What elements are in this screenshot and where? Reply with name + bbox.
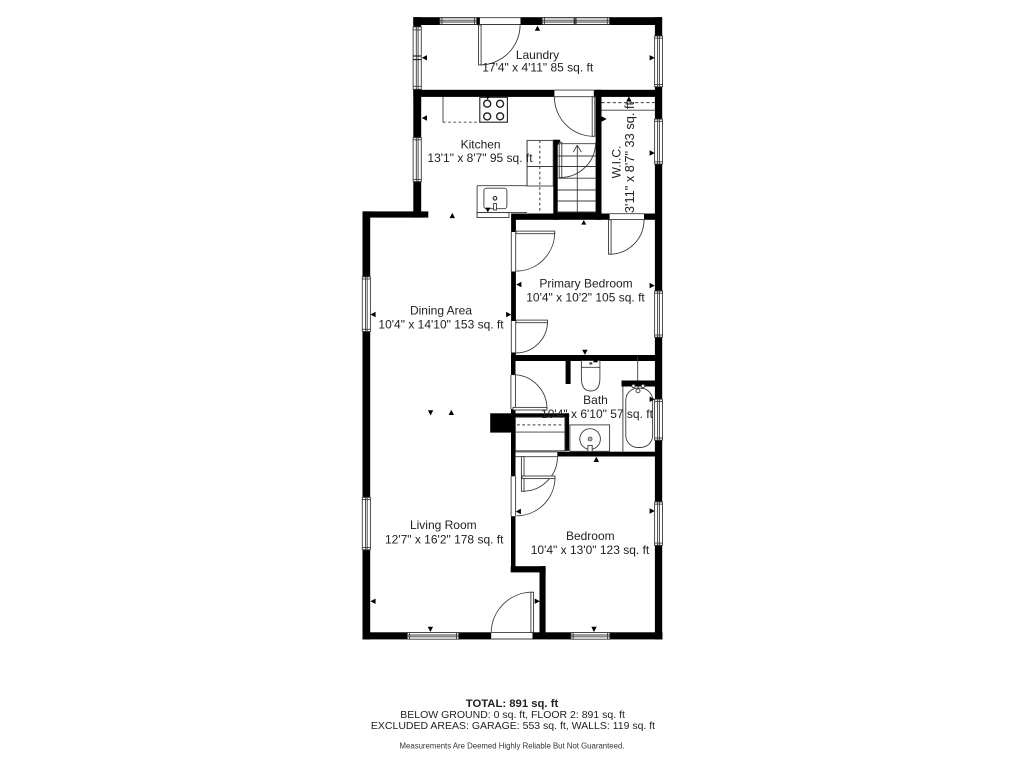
svg-text:Measurements Are Deemed Highly: Measurements Are Deemed Highly Reliable …	[400, 742, 625, 751]
svg-text:17'4" x 4'11" 85 sq. ft: 17'4" x 4'11" 85 sq. ft	[482, 61, 594, 75]
svg-text:EXCLUDED AREAS: GARAGE: 553 sq: EXCLUDED AREAS: GARAGE: 553 sq. ft, WALL…	[371, 720, 655, 732]
svg-text:Dining Area: Dining Area	[410, 303, 472, 317]
svg-text:Living Room: Living Room	[410, 518, 477, 532]
svg-text:3'11" x 8'7" 33 sq. ft: 3'11" x 8'7" 33 sq. ft	[622, 101, 637, 213]
svg-text:10'4" x 13'0" 123 sq. ft: 10'4" x 13'0" 123 sq. ft	[531, 543, 650, 557]
svg-text:10'4" x 6'10" 57 sq. ft: 10'4" x 6'10" 57 sq. ft	[541, 407, 654, 421]
svg-text:10'4" x 14'10" 153 sq. ft: 10'4" x 14'10" 153 sq. ft	[378, 317, 504, 331]
svg-text:Primary Bedroom: Primary Bedroom	[539, 276, 632, 290]
svg-text:10'4" x 10'2" 105 sq. ft: 10'4" x 10'2" 105 sq. ft	[526, 290, 645, 304]
svg-text:Bath: Bath	[583, 393, 608, 407]
svg-text:Bedroom: Bedroom	[566, 529, 615, 543]
svg-text:Kitchen: Kitchen	[461, 137, 501, 151]
svg-text:13'1" x 8'7" 95 sq. ft: 13'1" x 8'7" 95 sq. ft	[427, 151, 533, 165]
svg-text:TOTAL: 891 sq. ft: TOTAL: 891 sq. ft	[466, 698, 559, 710]
svg-text:12'7" x 16'2" 178 sq. ft: 12'7" x 16'2" 178 sq. ft	[385, 532, 504, 546]
